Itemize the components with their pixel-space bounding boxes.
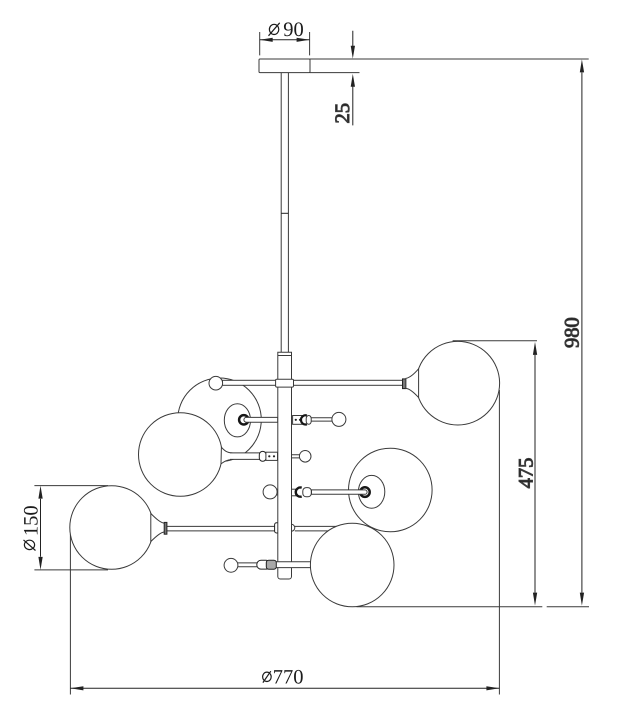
svg-text:770: 770: [273, 667, 304, 689]
svg-text:475: 475: [515, 458, 537, 489]
svg-text:150: 150: [20, 505, 42, 536]
svg-text:90: 90: [283, 19, 304, 41]
svg-text:980: 980: [561, 317, 583, 348]
svg-text:25: 25: [332, 103, 354, 124]
